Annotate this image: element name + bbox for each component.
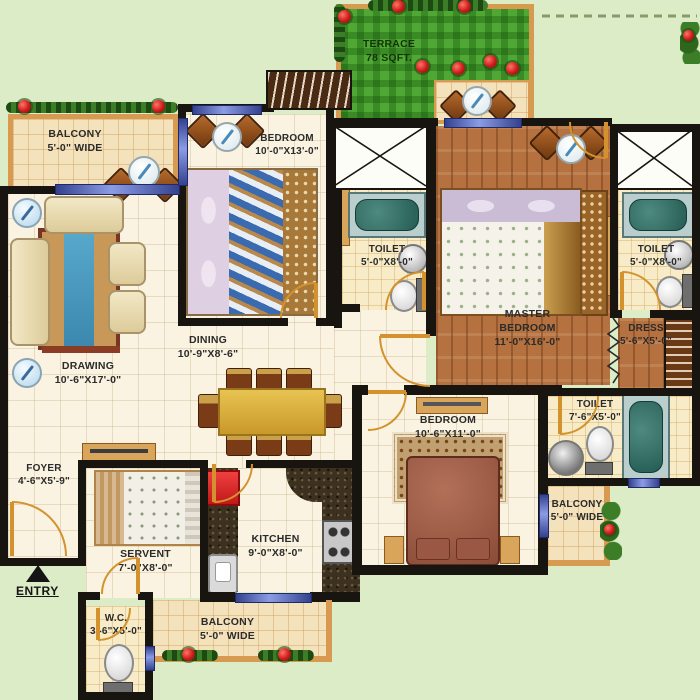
wall [200,592,235,602]
wall [178,184,186,326]
window [178,118,188,186]
balcony-br-label: BALCONY5'-0" WIDE [540,498,614,524]
wall [178,318,288,326]
dining-chair [226,368,252,390]
rug-fringe [42,346,120,353]
toilet [102,644,134,696]
servant-label: SERVENT7'-0"X8'-0" [98,548,193,576]
round-table [212,122,242,152]
wc-label: W.C.3'-6"X5'-0" [86,612,146,638]
bed-pillows [188,170,229,314]
dining-chair [256,434,282,456]
window [55,184,180,195]
wall [610,124,618,318]
dining-chair [286,434,312,456]
sofa [44,196,124,234]
kitchen-label: KITCHEN9'-0"X8'-0" [228,533,323,561]
dining-chair [226,434,252,456]
armchair [108,290,146,334]
wall [0,186,62,194]
dress-label: DRESS5'-6"X5'-0" [608,322,684,348]
rose-flower [458,0,471,13]
entry-arrow [26,565,50,582]
side-table [384,536,404,564]
balcony-bc-label: BALCONY5'-0" WIDE [175,616,280,644]
toilet [656,274,692,308]
master-bed [440,188,582,316]
toilet-c-label: TOILET5'-0"X8'-0" [350,243,424,269]
bed-pillows [416,538,450,560]
terrace-label: TERRACE78 SQFT. [346,38,432,66]
window [145,646,155,671]
wall [78,598,86,700]
rose-flower [182,648,195,661]
dining-chair [256,368,282,390]
wall [352,565,548,575]
rose-flower [452,62,465,75]
dresser [416,397,488,414]
bedroom1-label: BEDROOM10'-0"X13'-0" [244,132,330,158]
bed-sheet [124,472,184,544]
bathtub [622,192,694,238]
rose-flower [392,0,405,13]
entry-label: ENTRY [16,584,59,598]
floor-plan: ENTRY BALCONY5'-0" WIDE DRAWING10'-6"X17… [0,0,700,700]
bed-pillows [442,190,580,222]
bedside-rug [578,190,608,316]
balcony-tl-label: BALCONY5'-0" WIDE [20,128,130,156]
master-bedroom-label: MASTER BEDROOM11'-0"X16'-0" [470,308,585,350]
washbasin [548,440,584,476]
rose-flower [484,55,497,68]
dining-label: DINING10'-9"X8'-6" [162,334,254,362]
wall [692,124,700,486]
plant [680,22,700,64]
round-table [556,134,586,164]
duct-shaft [334,126,430,190]
window [192,105,262,115]
bed-runner [283,170,316,314]
duct-shaft [616,130,696,190]
window [444,118,522,128]
toilet-r-label: TOILET5'-0"X8'-0" [620,243,692,269]
bed [186,168,318,316]
side-table [500,536,520,564]
wall [334,118,438,126]
wall [0,186,8,566]
wall [78,460,208,468]
bed-quilt [229,170,283,314]
armchair [108,242,146,286]
bed [406,456,500,566]
bedroom2-label: BEDROOM10'-6"X11'-0" [393,414,503,442]
wall [334,304,360,312]
foyer-label: FOYER4'-6"X5'-9" [8,462,80,488]
wall [352,385,362,575]
wall [145,598,153,646]
window [235,593,312,603]
kitchen-appliance-red [206,470,240,506]
wall [426,118,436,336]
rose-flower [506,62,519,75]
cooktop [322,520,356,564]
compass-motif [12,198,42,228]
rose-flower [152,100,165,113]
toilet-br-label: TOILET7'-6"X5'-0" [545,398,645,424]
servant-bed [94,470,206,546]
balcony-bc-edge [326,600,332,660]
dining-chair [286,368,312,390]
wall [610,310,622,318]
wall [610,124,700,132]
rose-flower [278,648,291,661]
wall [78,692,153,700]
bed-pillows [456,538,490,560]
dining-table [218,388,326,436]
wall [310,592,360,602]
bed-pillows [96,472,124,544]
wall [246,460,360,468]
wall [520,118,612,126]
wall [200,468,208,598]
wall [650,310,700,318]
toilet [390,278,426,312]
wardrobe-hanger-unit [266,70,352,110]
rose-flower [18,100,31,113]
round-table [462,86,492,116]
sofa [10,238,50,346]
bathtub [348,192,426,238]
balcony-br-edge [548,560,610,566]
wall [538,478,628,486]
toilet [584,426,614,476]
drawing-label: DRAWING10'-6"X17'-0" [33,360,143,388]
wall [538,388,700,396]
bed-blanket [544,222,580,314]
rose-flower [338,10,351,23]
dining-chair [198,394,220,428]
window [628,478,660,488]
bed-sheet [442,222,544,314]
